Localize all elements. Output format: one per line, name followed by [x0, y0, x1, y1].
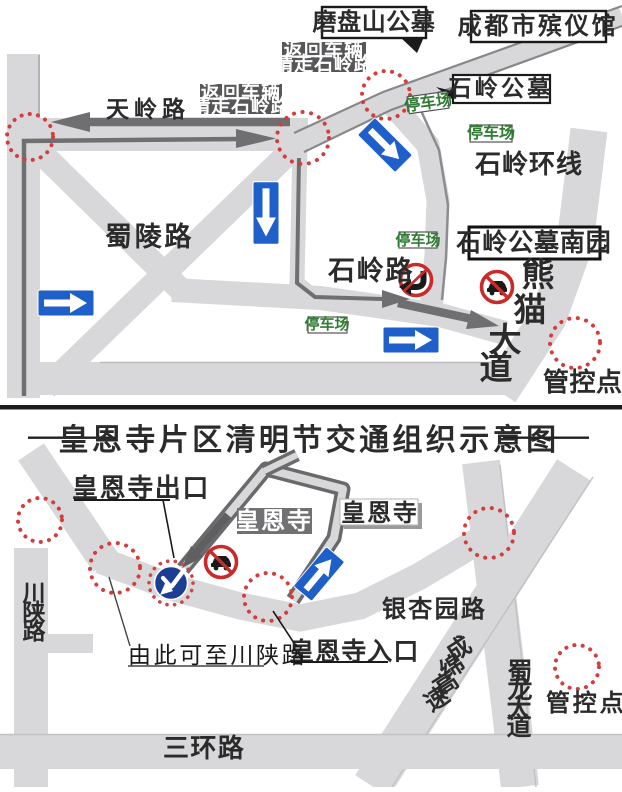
svg-text:道: 道	[480, 349, 513, 386]
svg-text:石岭环线: 石岭环线	[474, 149, 583, 179]
svg-text:皇恩寺片区清明节交通组织示意图: 皇恩寺片区清明节交通组织示意图	[59, 423, 560, 457]
svg-text:停车场: 停车场	[467, 123, 515, 142]
svg-text:成都市殡仪馆: 成都市殡仪馆	[458, 12, 619, 40]
svg-text:道: 道	[506, 712, 531, 741]
svg-text:熊: 熊	[522, 256, 555, 293]
svg-text:请走石岭路: 请走石岭路	[274, 52, 373, 75]
svg-text:由此可至川陕路: 由此可至川陕路	[128, 642, 307, 668]
svg-text:皇恩寺: 皇恩寺	[341, 500, 418, 527]
svg-text:天岭路: 天岭路	[106, 96, 190, 122]
svg-text:请走石岭路: 请走石岭路	[191, 94, 290, 117]
svg-text:皇恩寺: 皇恩寺	[235, 508, 312, 535]
svg-text:银杏园路: 银杏园路	[382, 595, 487, 623]
svg-text:石岭路: 石岭路	[327, 255, 414, 286]
svg-text:管控点: 管控点	[546, 689, 622, 717]
svg-text:皇恩寺出口: 皇恩寺出口	[72, 473, 210, 503]
svg-text:磨盘山公墓: 磨盘山公墓	[313, 8, 436, 36]
svg-text:三环路: 三环路	[163, 733, 245, 763]
svg-text:石岭公墓南园: 石岭公墓南园	[455, 228, 611, 257]
svg-text:路: 路	[23, 618, 47, 644]
svg-text:蜀陵路: 蜀陵路	[105, 221, 194, 252]
svg-text:石岭公墓: 石岭公墓	[447, 75, 553, 101]
svg-text:停车场: 停车场	[395, 231, 440, 249]
svg-text:停车场: 停车场	[304, 315, 349, 333]
svg-text:管控点: 管控点	[543, 367, 622, 397]
